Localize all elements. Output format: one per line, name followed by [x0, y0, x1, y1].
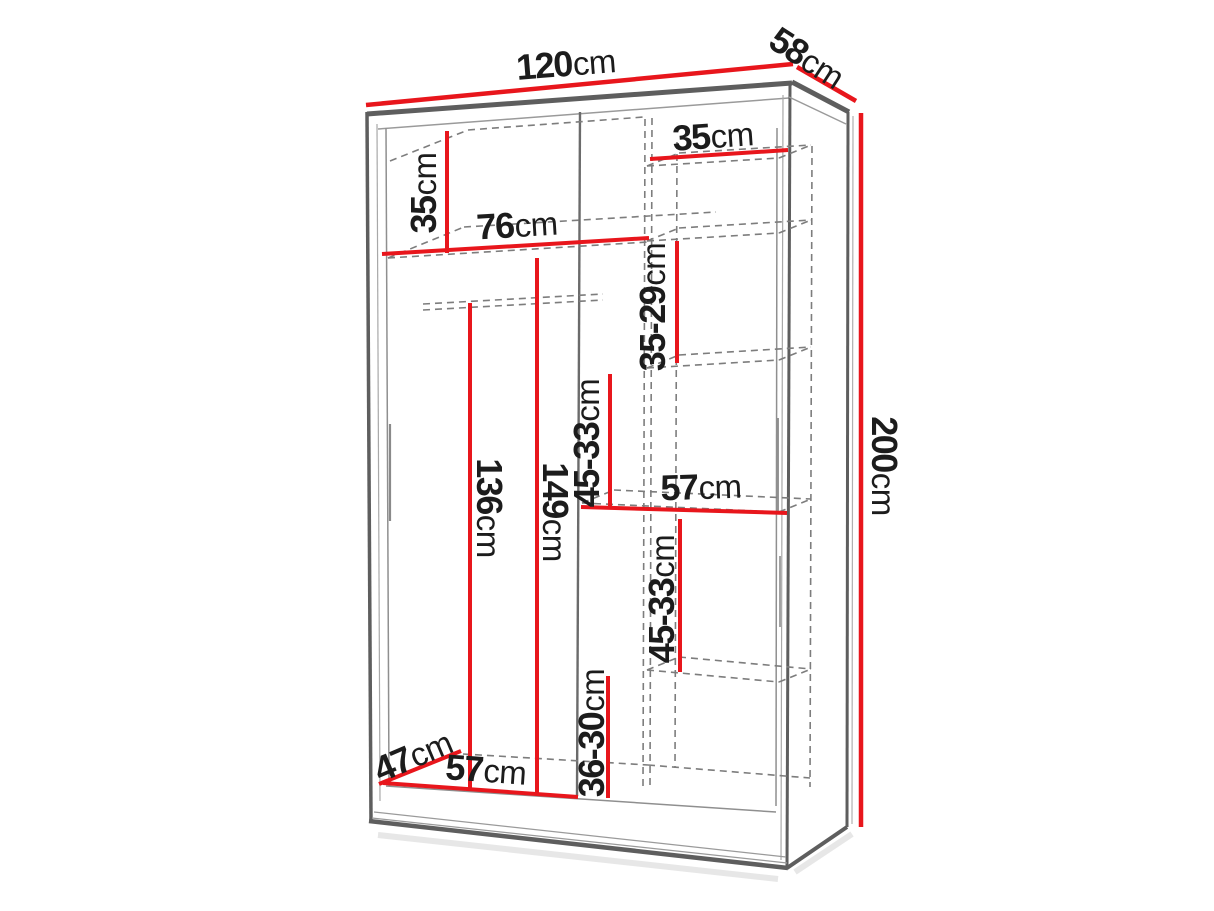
hanging-rail-2	[423, 300, 603, 310]
shelfB-front	[647, 233, 779, 241]
edge-right-inner-wall	[776, 128, 777, 806]
edge-left-inner	[386, 128, 389, 786]
edge-bottom-outer	[369, 821, 788, 868]
dim-label-149: 149cm	[537, 462, 573, 562]
dim-label-45-33-lower: 45-33cm	[644, 535, 680, 664]
dim-label-120: 120cm	[515, 42, 617, 86]
floor-back-right	[648, 765, 810, 778]
dim-label-136: 136cm	[471, 458, 507, 558]
dim-label-35-right: 35cm	[671, 115, 754, 157]
dim-label-57-bottom: 57cm	[444, 749, 527, 791]
edge-right-front-corner	[787, 82, 790, 868]
shelfC-depth-right	[779, 347, 811, 360]
dim-label-35-left: 35cm	[406, 152, 442, 233]
shelfD-depth-right	[779, 499, 811, 512]
divider-front-a	[643, 119, 645, 787]
edge-top-right-inner	[789, 97, 846, 124]
dim-label-57-mid: 57cm	[660, 468, 742, 507]
edge-left-outer	[367, 112, 371, 821]
edge-plinth-1	[374, 812, 786, 857]
edge-bottom-right	[787, 827, 847, 868]
shelfE-front	[647, 670, 779, 682]
shelfE-depth-right	[779, 669, 811, 682]
edge-right-back-2	[852, 116, 853, 824]
shelfB-depth-right	[779, 220, 811, 233]
dim-label-200: 200cm	[866, 416, 902, 516]
ceiling-back	[468, 117, 644, 130]
edge-right-stile	[781, 95, 783, 860]
shelfC-back	[679, 347, 811, 355]
edge-left-stile	[377, 124, 380, 801]
shelfB-back	[679, 220, 811, 228]
edge-right-back	[847, 112, 848, 827]
dim-label-76: 76cm	[475, 205, 558, 246]
dim-label-36-30: 36-30cm	[574, 669, 610, 798]
divider-back	[675, 142, 677, 768]
divider-front-b	[650, 118, 652, 787]
shelfE-back	[679, 657, 811, 669]
wardrobe-dimension-diagram: 120cm 58cm 200cm 35cm 76cm 35cm 35-29cm …	[0, 0, 1214, 911]
dim-label-35-29: 35-29cm	[635, 243, 671, 372]
hanging-rail-1	[423, 294, 603, 304]
right-wall-back	[810, 146, 812, 787]
